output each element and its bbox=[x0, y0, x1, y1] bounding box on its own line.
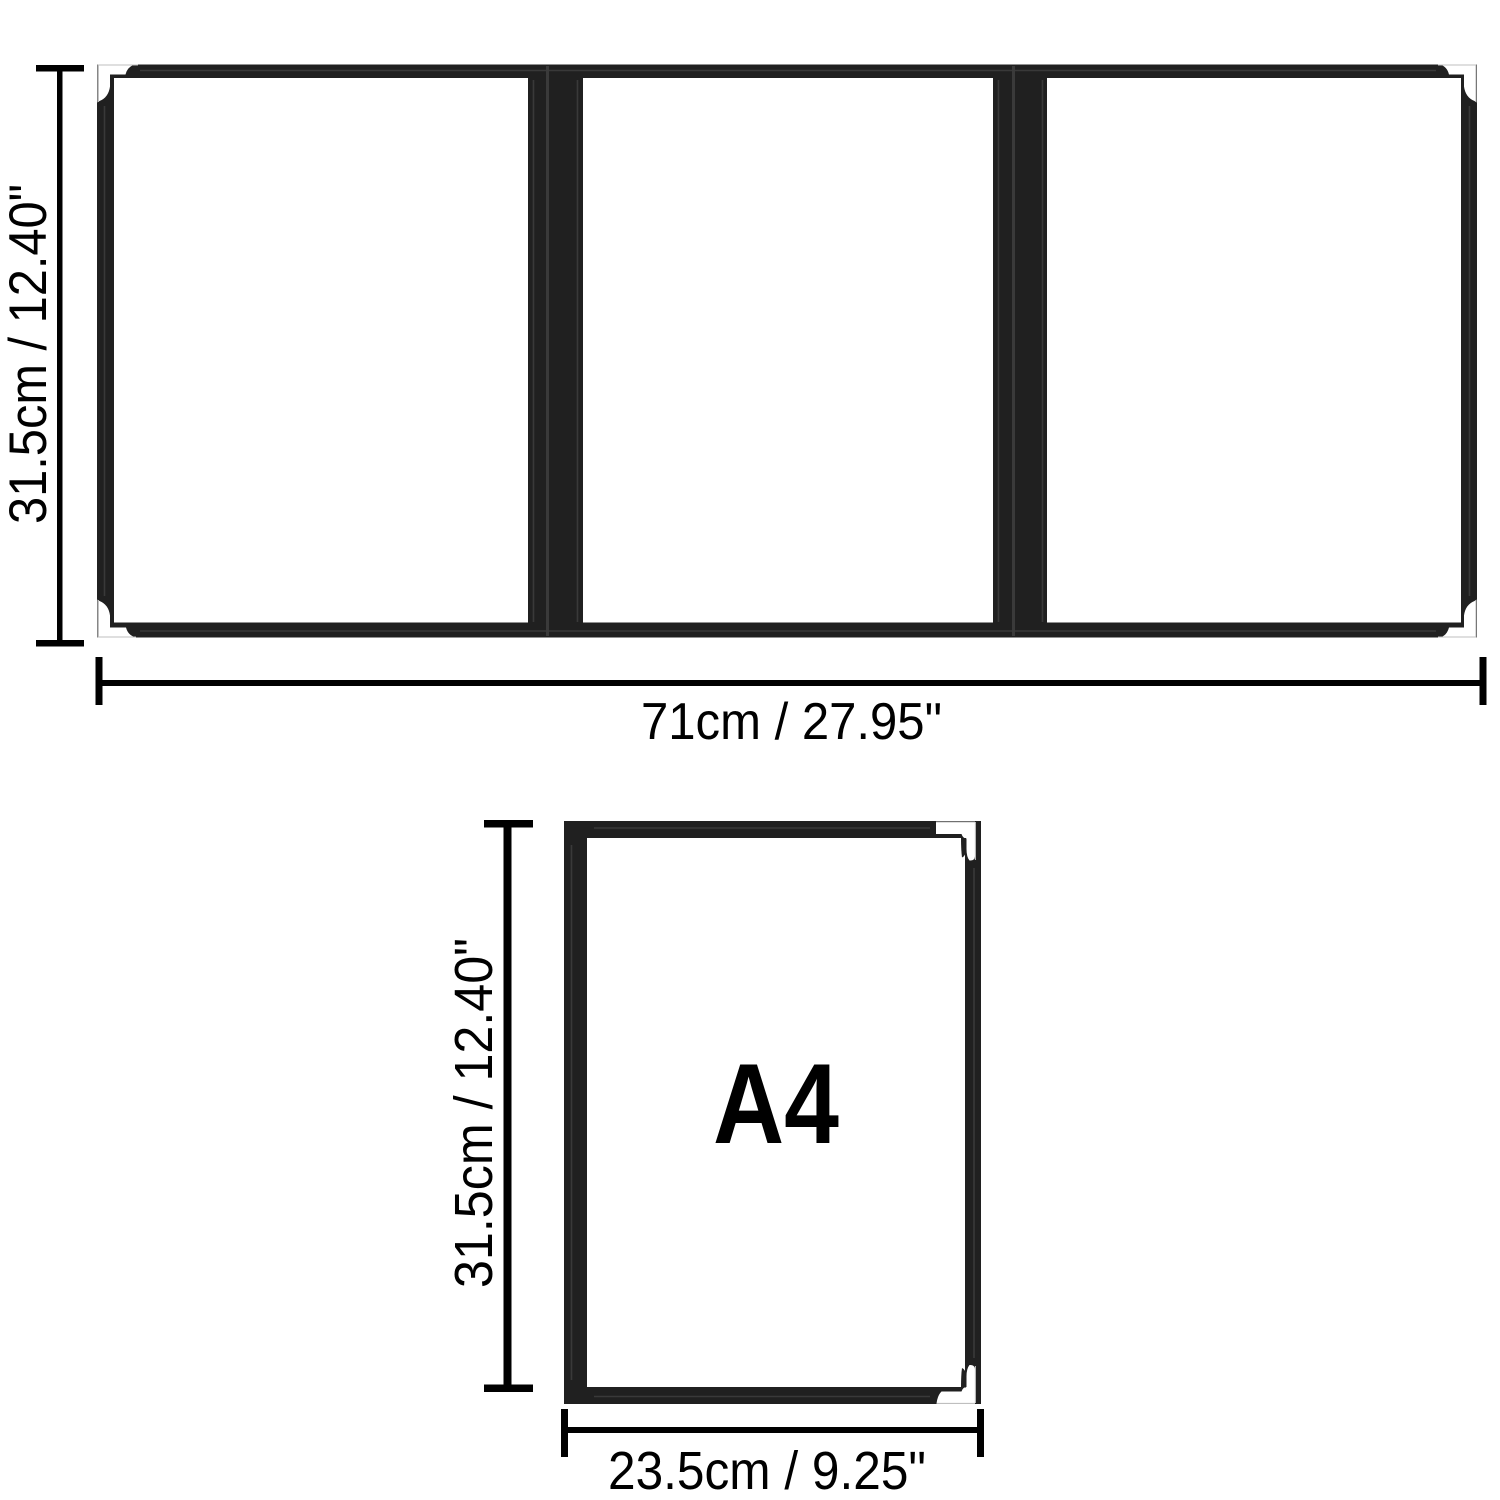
svg-text:A4: A4 bbox=[713, 1041, 839, 1168]
svg-text:71cm / 27.95": 71cm / 27.95" bbox=[641, 693, 942, 751]
svg-text:23.5cm / 9.25": 23.5cm / 9.25" bbox=[608, 1441, 926, 1500]
svg-text:31.5cm / 12.40": 31.5cm / 12.40" bbox=[0, 184, 58, 524]
svg-text:31.5cm / 12.40": 31.5cm / 12.40" bbox=[445, 938, 504, 1288]
